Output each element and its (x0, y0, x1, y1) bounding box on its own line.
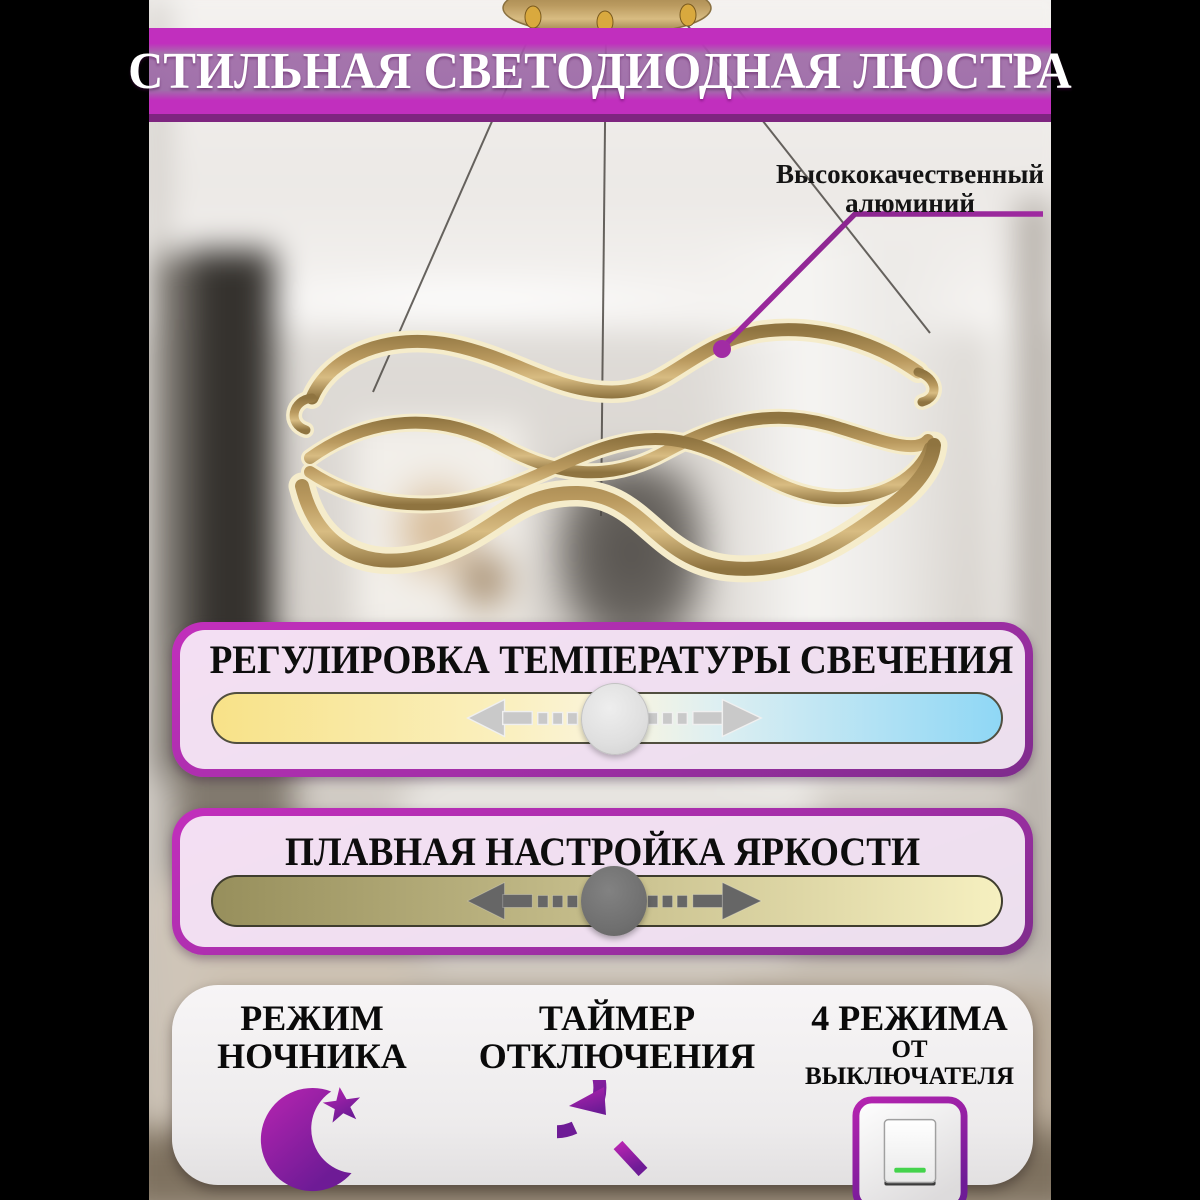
feature-switch-modes: 4 РЕЖИМА ОТ ВЫКЛЮЧАТЕЛЯ (786, 985, 1033, 1185)
features-panel: РЕЖИМ НОЧНИКА ТАЙМЕР ОТКЛЮЧЕНИЯ (172, 985, 1033, 1185)
feature-switch-modes-line2: ОТ ВЫКЛЮЧАТЕЛЯ (786, 1037, 1033, 1090)
feature-off-timer-line1: ТАЙМЕР (452, 999, 782, 1037)
title-banner: СТИЛЬНАЯ СВЕТОДИОДНАЯ ЛЮСТРА (149, 28, 1051, 122)
feature-night-mode-line2: НОЧНИКА (172, 1037, 452, 1075)
wall-switch-icon (851, 1096, 969, 1200)
feature-night-mode: РЕЖИМ НОЧНИКА (172, 985, 452, 1185)
feature-off-timer: ТАЙМЕР ОТКЛЮЧЕНИЯ (452, 985, 782, 1185)
arrow-left-icon (468, 700, 578, 737)
feature-night-mode-line1: РЕЖИМ (172, 999, 452, 1037)
brightness-slider-knob (581, 866, 647, 936)
temperature-slider-track (211, 692, 1003, 744)
callout-line1: Высококачественный (765, 160, 1055, 189)
feature-off-timer-line2: ОТКЛЮЧЕНИЯ (452, 1037, 782, 1075)
callout-label: Высококачественный алюминий (765, 160, 1055, 218)
arrow-left-icon (468, 883, 578, 920)
brightness-slider-track (211, 875, 1003, 927)
crescent-moon-star-icon (250, 1082, 375, 1197)
product-infographic: СТИЛЬНАЯ СВЕТОДИОДНАЯ ЛЮСТРА Высококачес… (0, 0, 1200, 1200)
page-title: СТИЛЬНАЯ СВЕТОДИОДНАЯ ЛЮСТРА (128, 42, 1072, 101)
feature-switch-modes-line1: 4 РЕЖИМА (786, 999, 1033, 1037)
temperature-slider-knob (581, 683, 649, 755)
letterbox-left (0, 0, 149, 1200)
letterbox-right (1051, 0, 1200, 1200)
temperature-panel-title: РЕГУЛИРОВКА ТЕМПЕРАТУРЫ СВЕЧЕНИЯ (210, 636, 996, 683)
timer-clock-icon (557, 1080, 677, 1198)
panel-color-temperature: РЕГУЛИРОВКА ТЕМПЕРАТУРЫ СВЕЧЕНИЯ (172, 622, 1033, 777)
arrow-right-icon (648, 700, 762, 737)
callout-line2: алюминий (765, 189, 1055, 218)
panel-brightness: ПЛАВНАЯ НАСТРОЙКА ЯРКОСТИ (172, 808, 1033, 955)
arrow-right-icon (648, 883, 762, 920)
